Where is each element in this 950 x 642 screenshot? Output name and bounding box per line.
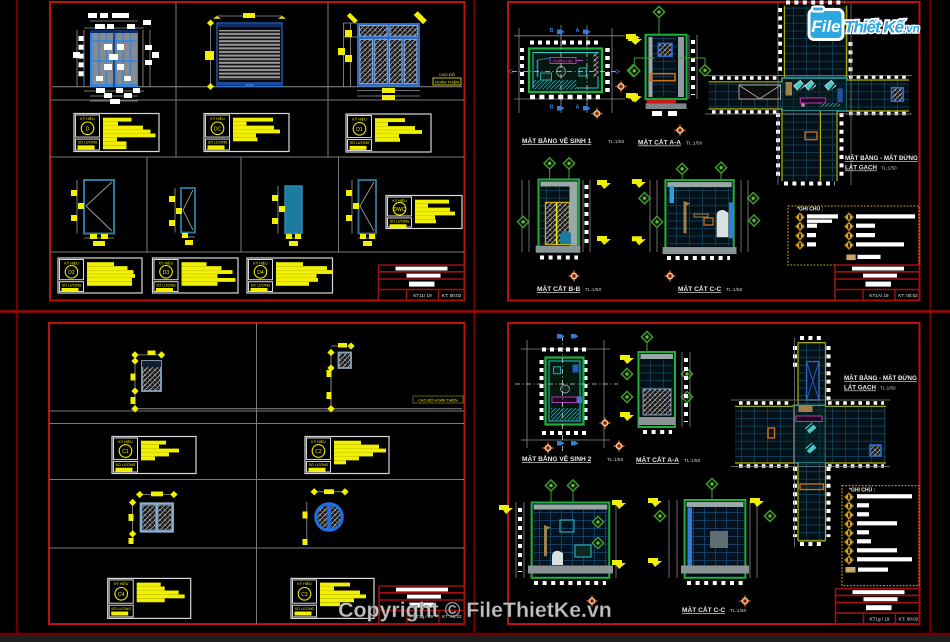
svg-text:C1: C1 (122, 449, 129, 455)
svg-text:B: B (550, 28, 554, 34)
svg-text:KÝ HIỆU: KÝ HIỆU (311, 439, 326, 444)
svg-text:PHÒNG TẮM: PHÒNG TẮM (553, 58, 573, 63)
svg-text:KÝ HIỆU: KÝ HIỆU (64, 261, 79, 266)
svg-text:A: A (576, 105, 580, 111)
svg-text:KÝ HIỆU: KÝ HIỆU (118, 439, 133, 444)
svg-text:KT: 00:02: KT: 00:02 (899, 616, 919, 621)
svg-text:C4: C4 (118, 592, 125, 598)
svg-text:C3: C3 (301, 592, 308, 598)
svg-text:D2: D2 (68, 270, 75, 276)
svg-text:MẶT CẮT C-C: MẶT CẮT C-C (678, 284, 721, 293)
svg-text:Thiết Kế: Thiết Kế (844, 18, 906, 37)
svg-text:SỐ LƯỢNG: SỐ LƯỢNG (116, 462, 136, 467)
svg-text:SỐ LƯỢNG: SỐ LƯỢNG (390, 219, 410, 224)
svg-text:MẶT BẰNG VỆ SINH 1: MẶT BẰNG VỆ SINH 1 (522, 136, 592, 145)
svg-text:DC: DC (214, 126, 222, 132)
svg-text:D1: D1 (356, 127, 363, 133)
svg-text:MẶT BẰNG VỆ SINH 2: MẶT BẰNG VỆ SINH 2 (522, 454, 592, 463)
svg-text:TL:1/50: TL:1/50 (686, 141, 703, 147)
svg-text:MẶT CẮT A-A: MẶT CẮT A-A (636, 455, 679, 464)
svg-text:KÝ HIỆU: KÝ HIỆU (297, 581, 312, 586)
svg-text:KÝ HIỆU: KÝ HIỆU (352, 117, 367, 122)
svg-text:SỐ LƯỢNG: SỐ LƯỢNG (295, 606, 315, 611)
svg-text:KT: 00:02: KT: 00:02 (442, 293, 462, 298)
svg-text:KÝ HIỆU: KÝ HIỆU (159, 261, 174, 266)
svg-text:Copyright © FileThietKe.vn: Copyright © FileThietKe.vn (338, 598, 612, 622)
svg-text:TL:1/50: TL:1/50 (730, 608, 747, 614)
svg-text:TL:1/50: TL:1/50 (585, 287, 602, 293)
svg-text:KT: 00:02: KT: 00:02 (898, 293, 918, 298)
svg-text:SỐ LƯỢNG: SỐ LƯỢNG (208, 140, 228, 145)
svg-text:B: B (550, 105, 554, 111)
svg-text:MẶT BẰNG - MẶT ĐỨNG: MẶT BẰNG - MẶT ĐỨNG (845, 154, 918, 162)
svg-text:TL:1/50: TL:1/50 (881, 166, 897, 171)
svg-text:TL:1/50: TL:1/50 (607, 457, 624, 463)
svg-text:*GHI CHÚ :: *GHI CHÚ : (849, 487, 875, 494)
svg-text:CAO ĐỘ HOÀN THIỆN: CAO ĐỘ HOÀN THIỆN (418, 398, 458, 403)
svg-text:SỐ LƯỢNG: SỐ LƯỢNG (111, 606, 131, 611)
svg-text:SỐ LƯỢNG: SỐ LƯỢNG (156, 282, 176, 287)
svg-text:D: D (86, 126, 90, 132)
svg-text:MẶT CẮT A-A: MẶT CẮT A-A (638, 138, 681, 147)
svg-text:D4: D4 (257, 270, 264, 276)
svg-text:MẶT CẮT C-C: MẶT CẮT C-C (682, 605, 725, 614)
svg-text:MẶT BẰNG - MẶT ĐỨNG: MẶT BẰNG - MẶT ĐỨNG (844, 374, 917, 382)
svg-text:CAO ĐỘ: CAO ĐỘ (439, 72, 455, 77)
svg-text:SỐ LƯỢNG: SỐ LƯỢNG (309, 462, 329, 467)
svg-text:KT1g / 19: KT1g / 19 (870, 616, 890, 621)
svg-text:File: File (811, 17, 840, 36)
svg-text:KT1A/ 19: KT1A/ 19 (869, 293, 889, 298)
svg-text:KÝ HIỆU: KÝ HIỆU (114, 581, 129, 586)
svg-text:TL:1/50: TL:1/50 (684, 458, 701, 464)
svg-text:KÝ HIỆU: KÝ HIỆU (80, 116, 95, 121)
svg-text:TL:1/50: TL:1/50 (608, 139, 625, 145)
svg-text:C2: C2 (315, 449, 322, 455)
svg-text:TL:1/50: TL:1/50 (726, 287, 743, 293)
svg-text:KÝ HIỆU: KÝ HIỆU (210, 116, 225, 121)
svg-text:SỐ LƯỢNG: SỐ LƯỢNG (62, 282, 82, 287)
svg-text:D3: D3 (163, 270, 170, 276)
svg-text:A: A (576, 28, 580, 34)
svg-text:.vn: .vn (903, 24, 920, 36)
svg-text:DWC: DWC (394, 207, 406, 213)
svg-text:LÁT GẠCH: LÁT GẠCH (845, 165, 877, 172)
svg-text:LÁT GẠCH: LÁT GẠCH (844, 385, 876, 392)
svg-text:SỐ LƯỢNG: SỐ LƯỢNG (350, 140, 370, 145)
svg-text:C: C (615, 70, 619, 76)
svg-text:KT11/ 19: KT11/ 19 (413, 293, 432, 298)
svg-text:HOÀN THIỆN: HOÀN THIỆN (435, 80, 460, 85)
svg-text:C: C (509, 70, 513, 76)
svg-text:TL:1/50: TL:1/50 (880, 386, 896, 391)
svg-text:MẶT CẮT B-B: MẶT CẮT B-B (537, 284, 580, 293)
svg-text:*GHI CHÚ :: *GHI CHÚ : (797, 206, 823, 213)
svg-text:SỐ LƯỢNG: SỐ LƯỢNG (251, 282, 271, 287)
svg-text:KÝ HIỆU: KÝ HIỆU (253, 261, 268, 266)
svg-text:SỐ LƯỢNG: SỐ LƯỢNG (78, 140, 98, 145)
